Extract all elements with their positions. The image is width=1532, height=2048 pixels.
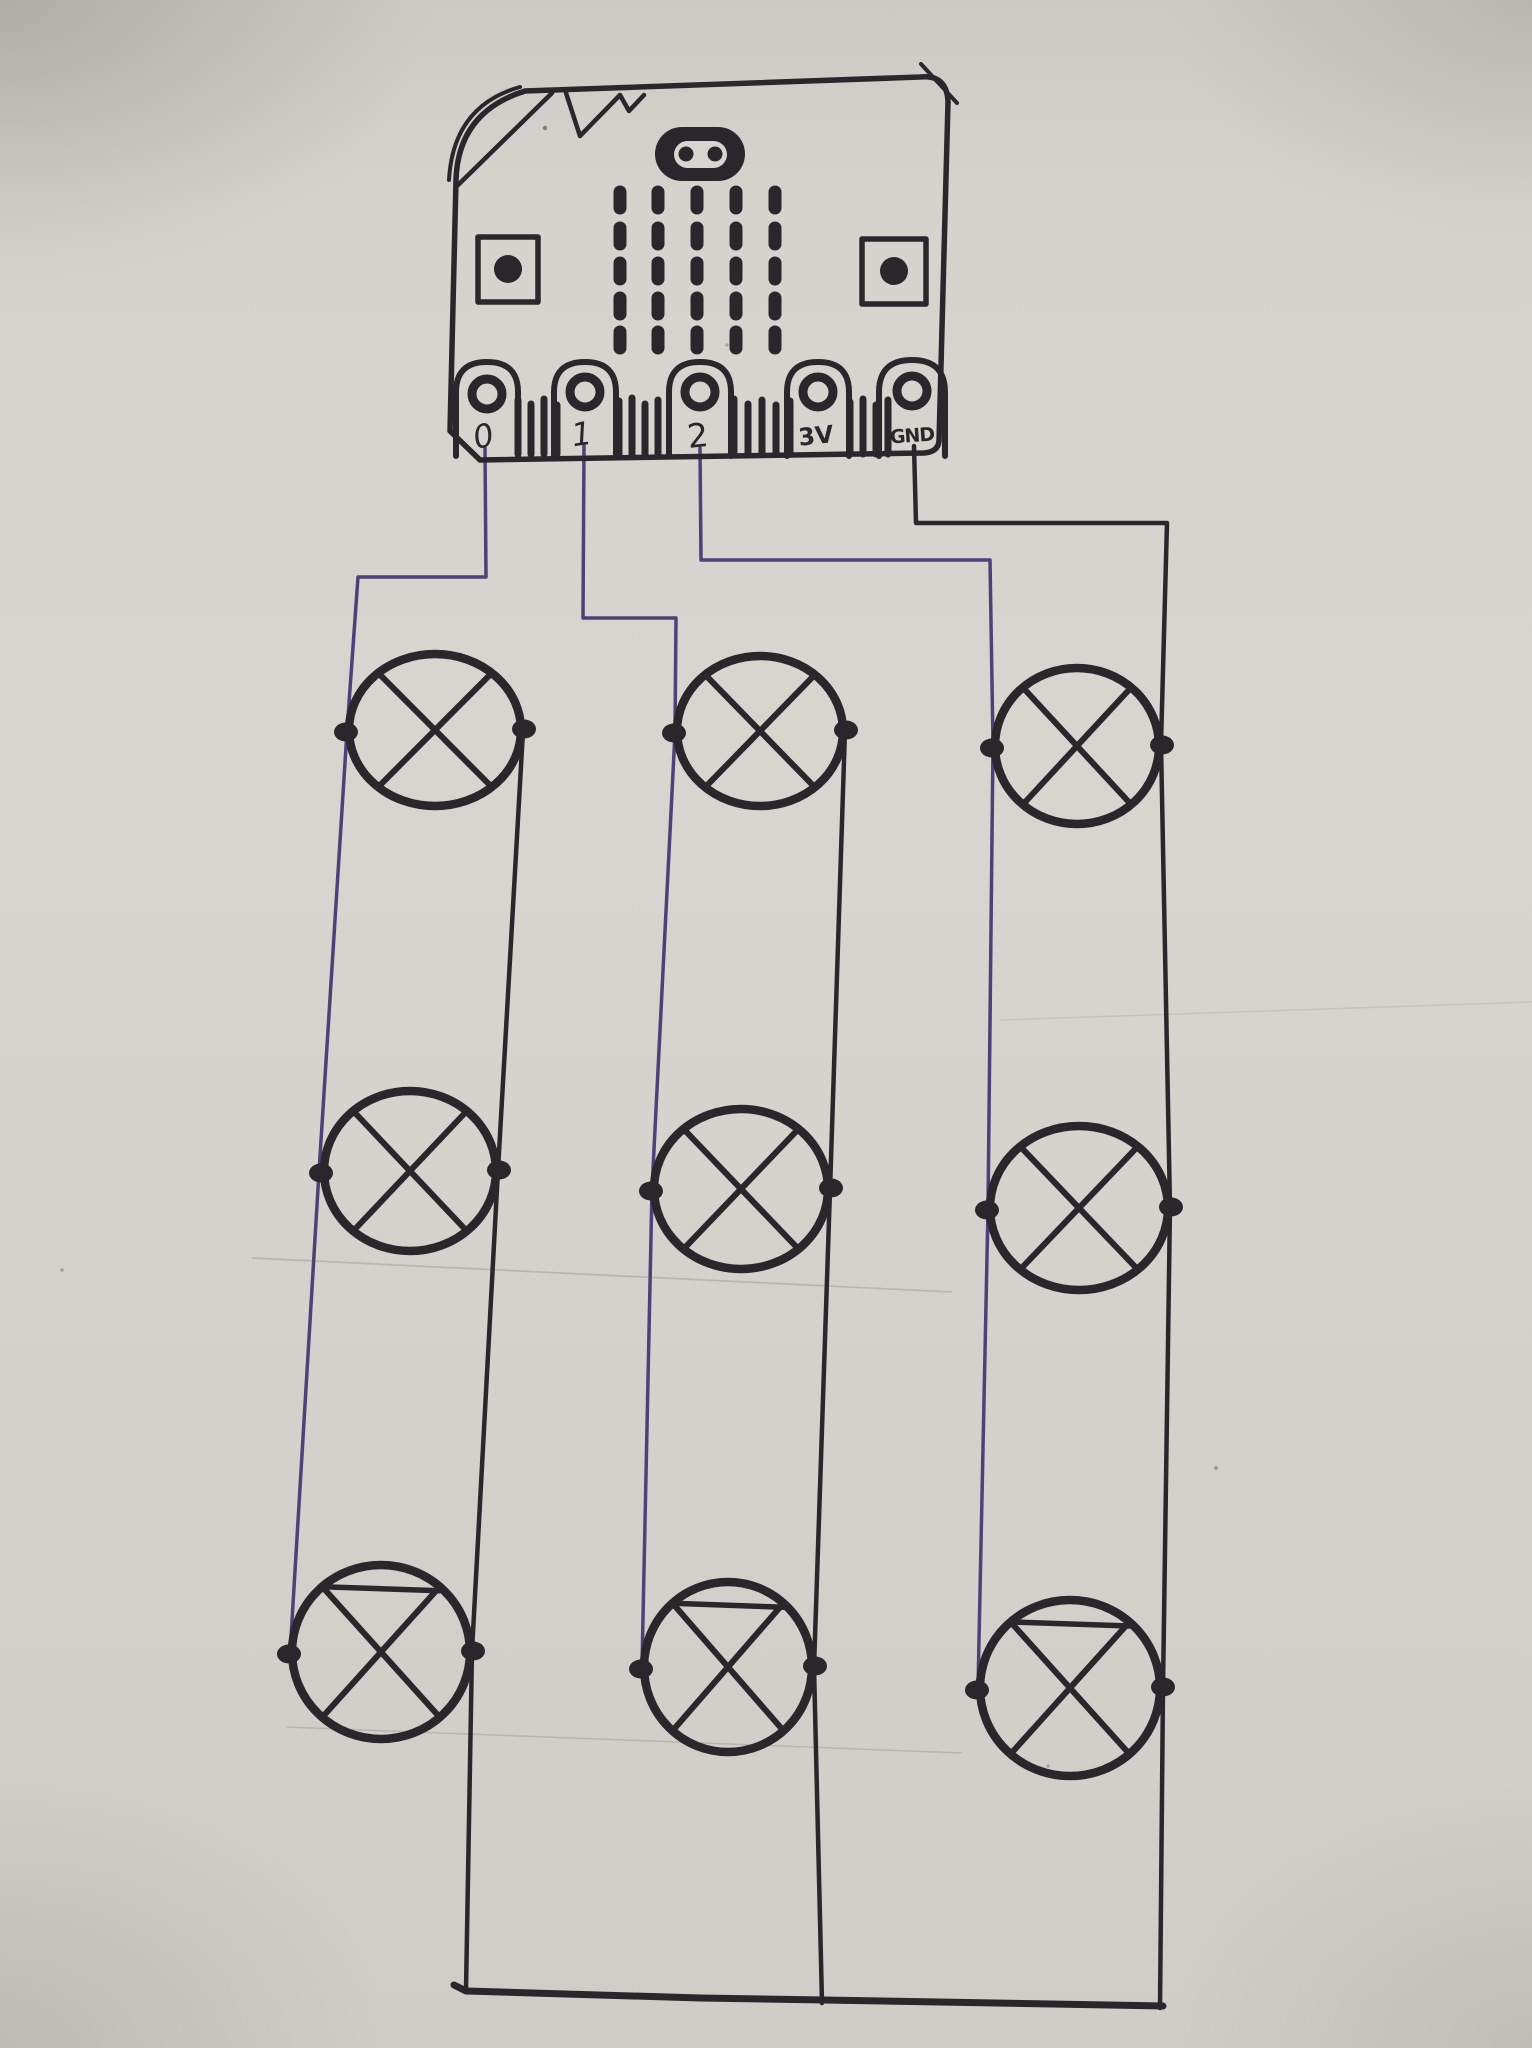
zigzag-sketch: [566, 93, 644, 136]
pin-2: 2: [669, 362, 731, 456]
wire-pin0-left-rail-col1: [290, 448, 486, 1654]
lamp-terminal-dot-left: [980, 739, 1004, 758]
lamp-terminal-dot-right: [1150, 736, 1174, 755]
pin-3v: 3V: [787, 362, 849, 456]
pin-1-label: 1: [569, 414, 594, 454]
lamp-terminal-dot-right: [834, 721, 858, 740]
lamp-r2c1: [309, 1091, 511, 1251]
fold-diagonal-sketch: [458, 93, 552, 185]
lamp-terminal-dot-right: [803, 1657, 827, 1676]
corner-overdraw-top-right: [921, 64, 957, 103]
ground-bus: [454, 1985, 1163, 2006]
wire-pin1-left-rail-col2: [583, 446, 676, 1666]
lamp-top-chord: [322, 1587, 439, 1591]
pin-1-hole: [570, 377, 600, 407]
lamp-terminal-dot-right: [487, 1161, 511, 1180]
paper-crease: [1000, 1002, 1532, 1020]
paper-speck: [1046, 1764, 1049, 1767]
photo-of-paper-diagram: 0 1 2 3V GND: [0, 0, 1532, 2048]
lamp-terminal-dot-left: [975, 1201, 999, 1220]
pin-3v-hole: [803, 377, 833, 407]
lamp-grid: [277, 654, 1183, 1776]
lamp-terminal-dot-left: [629, 1660, 653, 1679]
lamp-terminal-dot-right: [1151, 1678, 1175, 1697]
button-a-dot: [494, 255, 522, 283]
wire-pin2-left-rail-col3: [700, 448, 993, 1688]
lamp-terminal-dot-left: [662, 724, 686, 743]
paper-speck: [1214, 1466, 1218, 1470]
lamp-r2c2: [639, 1109, 843, 1269]
lamp-top-chord: [673, 1603, 784, 1607]
pin-2-label: 2: [685, 415, 710, 456]
paper-crease: [252, 1258, 952, 1292]
lamp-top-chord: [1011, 1622, 1130, 1626]
lamp-terminal-dot-left: [965, 1681, 989, 1700]
paper-speck: [60, 1268, 64, 1272]
lamp-r3c2: [629, 1582, 827, 1752]
lamp-r3c1: [277, 1565, 485, 1739]
pin-gnd-label: GND: [889, 423, 935, 448]
lamp-r1c3: [980, 668, 1174, 824]
microbit-logo-icon: [655, 127, 745, 181]
pin-1: 1: [554, 362, 616, 456]
lamp-terminal-dot-left: [309, 1164, 333, 1183]
button-a: [478, 237, 538, 302]
right-rail-col1: [466, 731, 523, 1990]
lamp-r2c3: [975, 1126, 1183, 1290]
right-rail-col2: [814, 730, 845, 2003]
microbit-board: 0 1 2 3V GND: [449, 64, 957, 460]
paper-speck: [543, 126, 547, 130]
lamp-terminal-dot-right: [461, 1642, 485, 1661]
button-b-dot: [880, 257, 908, 285]
led-matrix: [620, 192, 775, 348]
pin-0-hole: [472, 379, 502, 409]
lamp-r1c1: [334, 654, 536, 806]
pin-2-hole: [685, 377, 715, 407]
paper-speck: [725, 343, 728, 346]
lamp-terminal-dot-left: [277, 1645, 301, 1664]
lamp-r3c3: [965, 1600, 1175, 1776]
pin-3v-label: 3V: [797, 420, 835, 452]
lamp-terminal-dot-right: [512, 720, 536, 739]
lamp-terminal-dot-left: [334, 723, 358, 742]
pin-gnd-hole: [897, 376, 927, 406]
lamp-terminal-dot-right: [1159, 1198, 1183, 1217]
button-b: [862, 239, 926, 304]
lamp-terminal-dot-left: [639, 1182, 663, 1201]
lamp-r1c2: [662, 656, 858, 806]
lamp-terminal-dot-right: [819, 1179, 843, 1198]
